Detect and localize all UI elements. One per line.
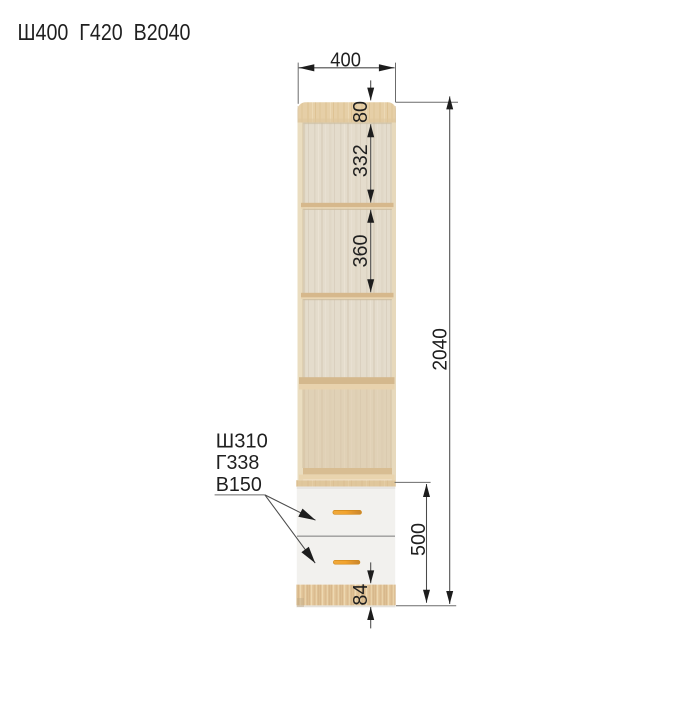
- svg-text:84: 84: [349, 584, 372, 606]
- svg-text:80: 80: [349, 101, 372, 123]
- svg-text:500: 500: [407, 523, 430, 556]
- svg-text:360: 360: [349, 235, 372, 268]
- svg-text:Г338: Г338: [216, 451, 259, 474]
- svg-text:332: 332: [349, 144, 372, 177]
- svg-text:Ш400 Г420 В2040: Ш400 Г420 В2040: [18, 19, 191, 45]
- svg-text:В150: В150: [216, 473, 262, 496]
- svg-text:400: 400: [330, 48, 361, 71]
- svg-text:2040: 2040: [428, 328, 451, 371]
- svg-text:Ш310: Ш310: [216, 430, 268, 453]
